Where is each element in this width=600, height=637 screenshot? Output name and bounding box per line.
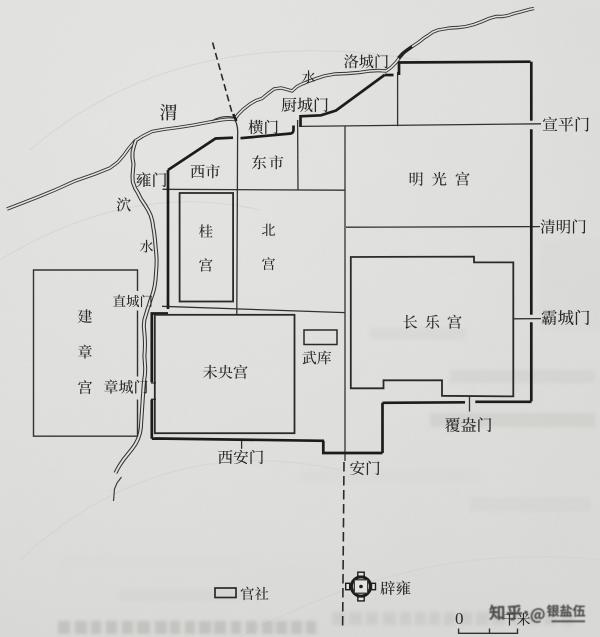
- svg-text:0: 0: [455, 609, 464, 628]
